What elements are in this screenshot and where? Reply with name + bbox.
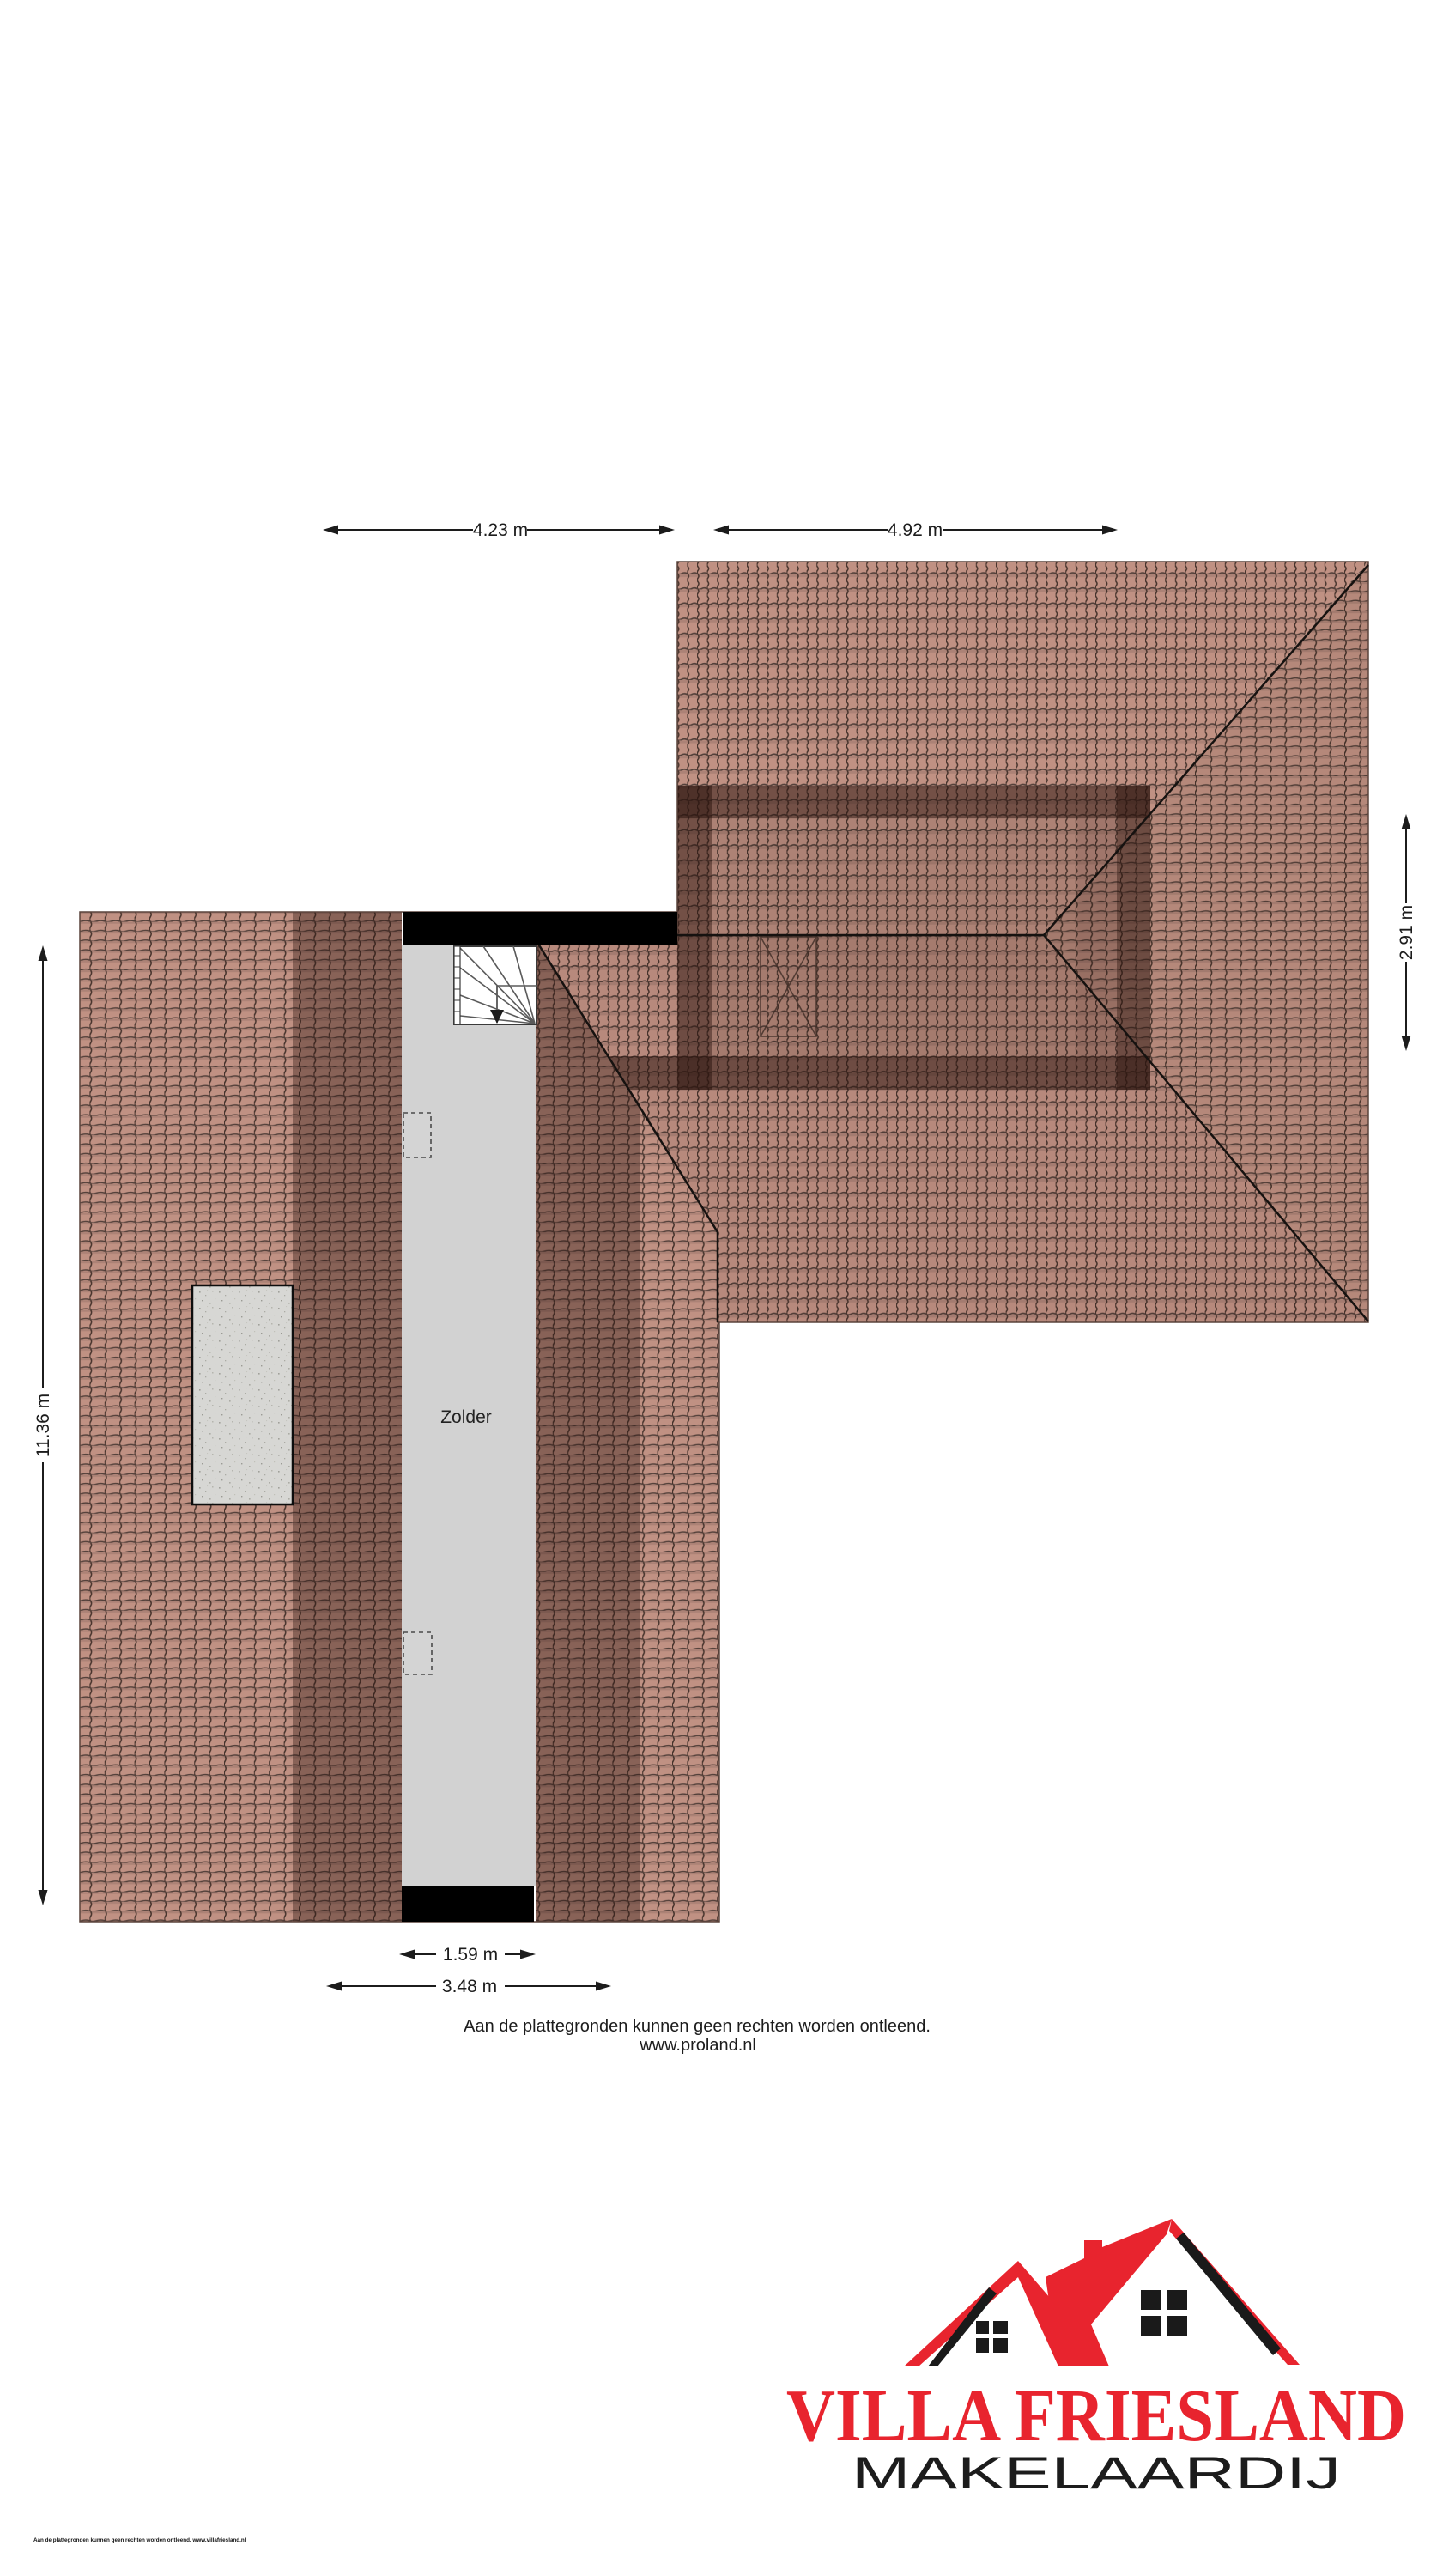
svg-text:4.92 m: 4.92 m — [888, 520, 943, 540]
svg-text:2.91 m: 2.91 m — [1397, 905, 1416, 960]
svg-text:Aan de plattegronden kunnen ge: Aan de plattegronden kunnen geen rechten… — [464, 2017, 931, 2036]
svg-text:Zolder: Zolder — [440, 1407, 492, 1427]
svg-text:3.48 m: 3.48 m — [442, 1977, 497, 1996]
svg-text:1.59 m: 1.59 m — [443, 1945, 498, 1965]
svg-text:www.proland.nl: www.proland.nl — [639, 2036, 756, 2055]
svg-text:4.23 m: 4.23 m — [473, 520, 528, 540]
svg-text:MAKELAARDIJ: MAKELAARDIJ — [852, 2448, 1341, 2499]
svg-text:VILLA FRIESLAND: VILLA FRIESLAND — [786, 2373, 1406, 2457]
svg-text:Aan de plattegronden kunnen ge: Aan de plattegronden kunnen geen rechten… — [33, 2537, 246, 2543]
svg-text:11.36 m: 11.36 m — [33, 1394, 53, 1457]
